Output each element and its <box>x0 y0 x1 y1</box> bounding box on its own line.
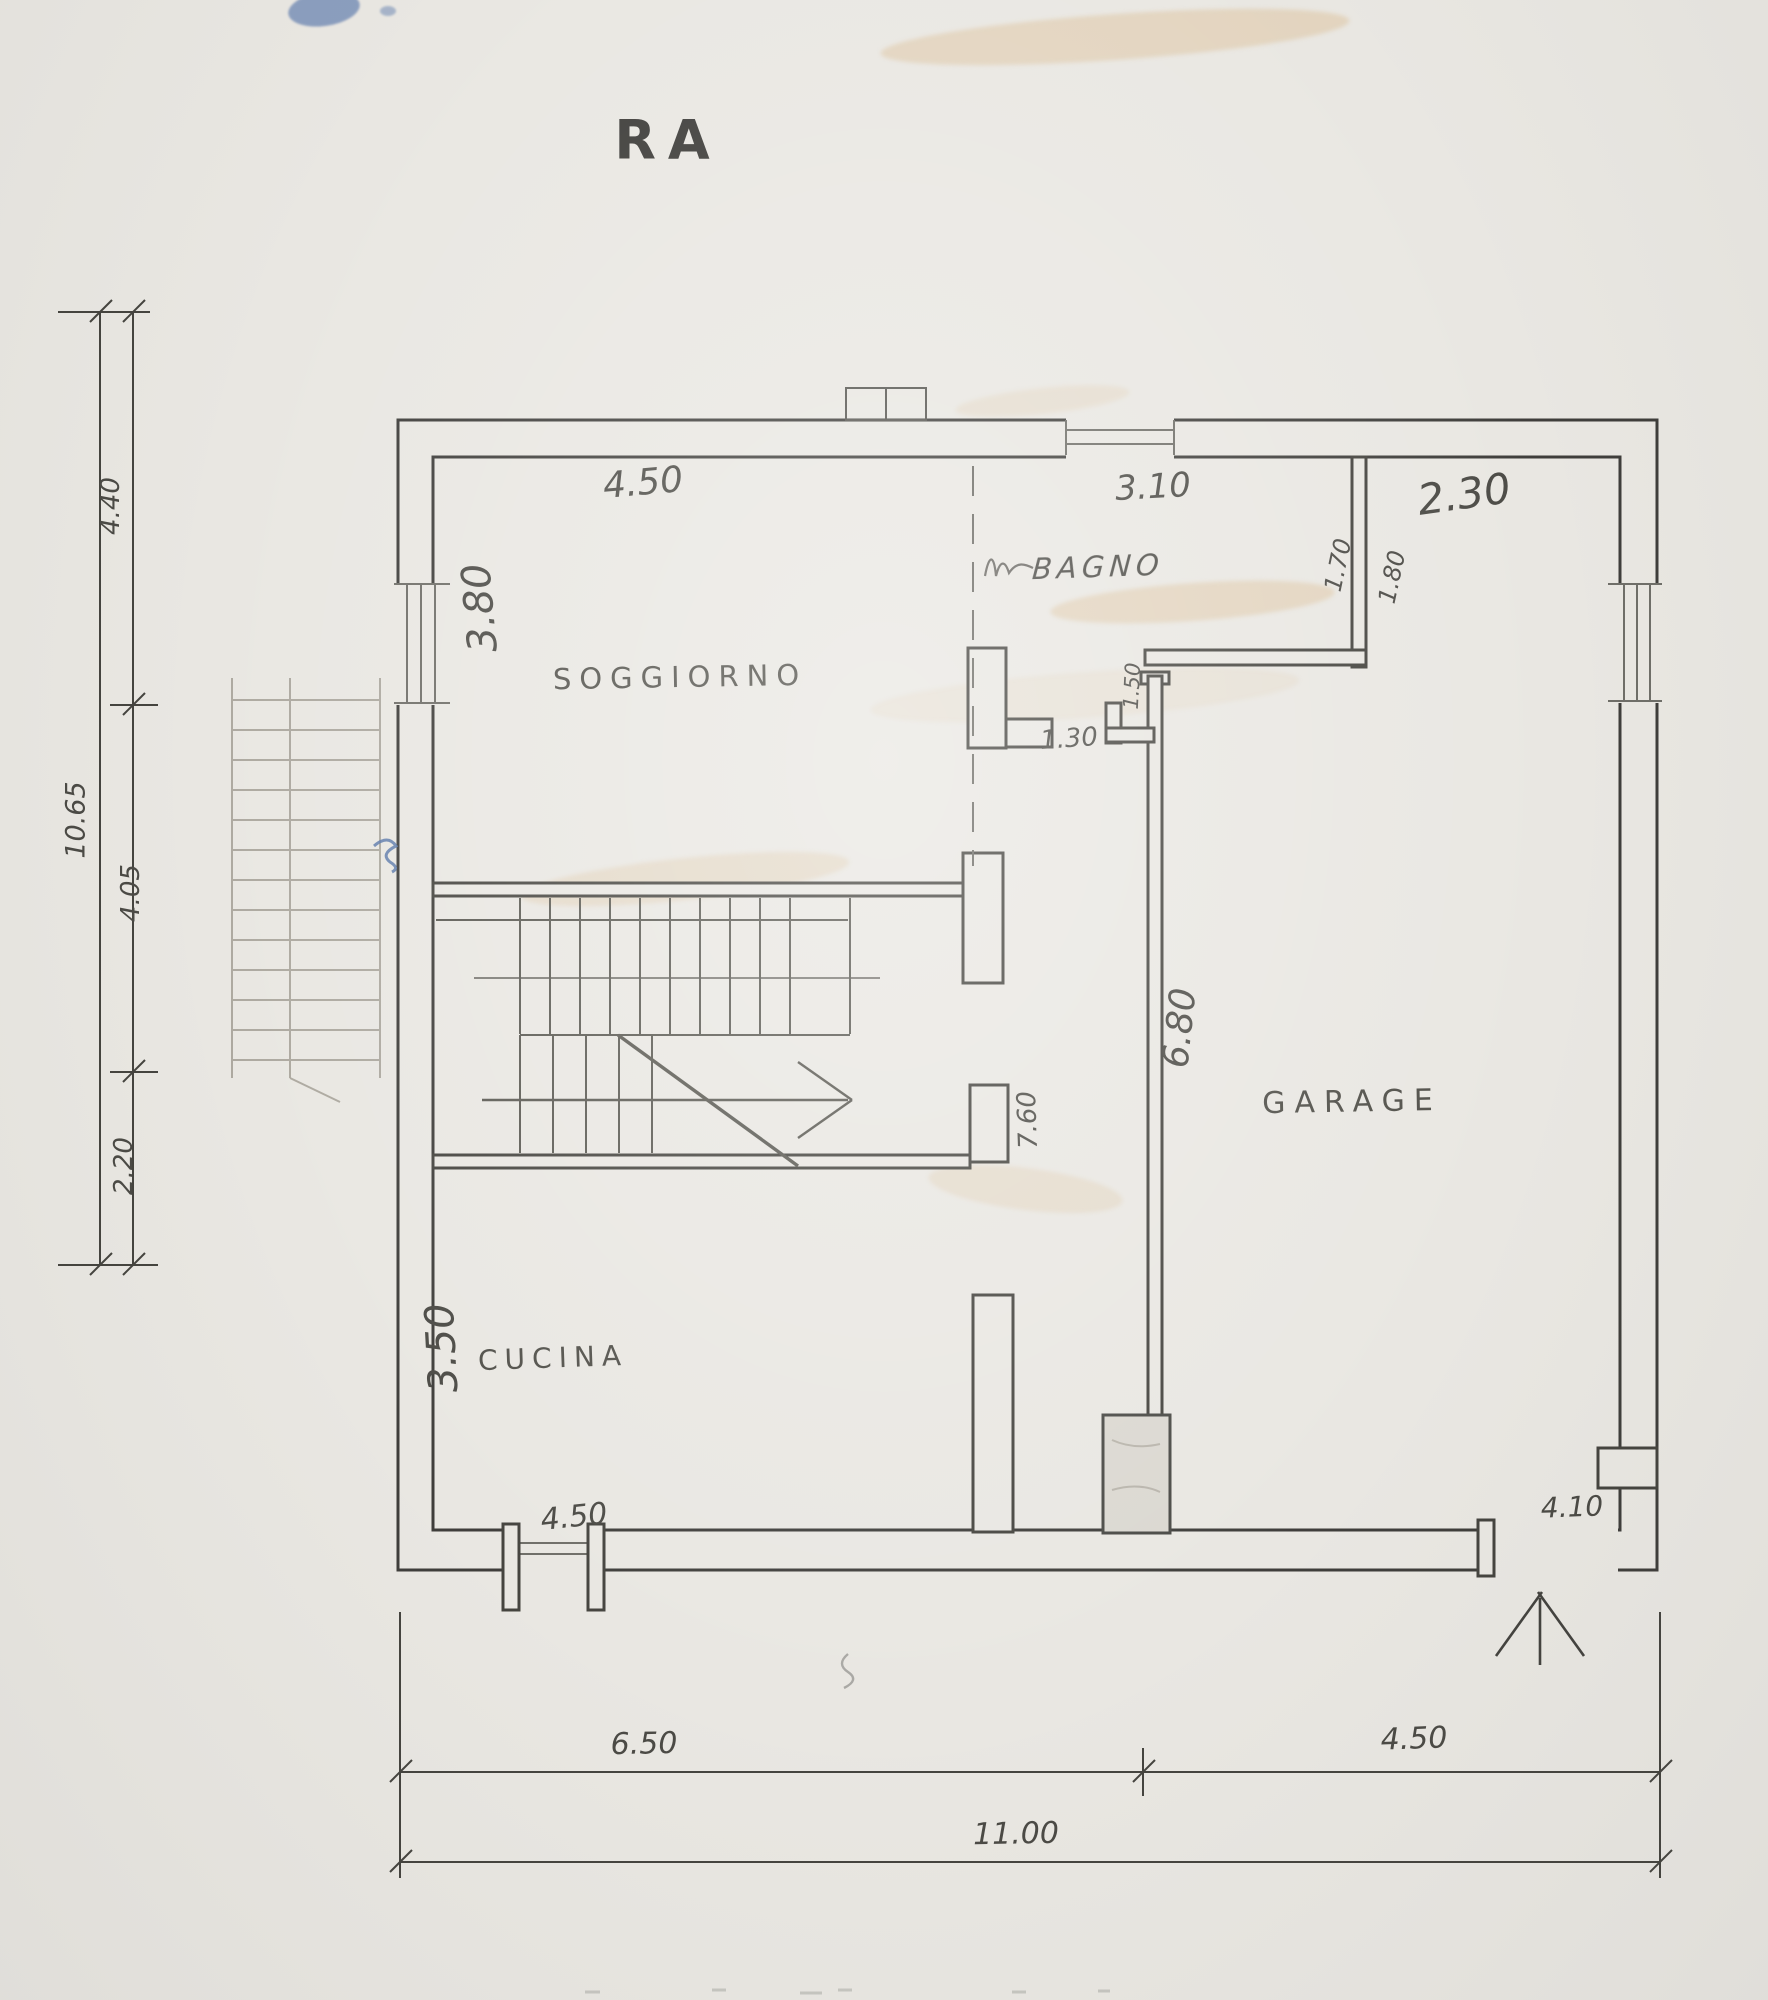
window-glyphs <box>394 420 1662 1554</box>
dim-bottom-right: 4.50 <box>1380 1720 1448 1757</box>
room-label-bagno: BAGNO <box>1031 548 1165 587</box>
dim-hall-opening: 1.30 <box>1039 722 1099 756</box>
illegible-handwriting <box>985 560 1033 577</box>
dim-hall-length: 7.60 <box>1012 1091 1044 1150</box>
dim-top-soggiorno: 4.50 <box>601 459 684 507</box>
dim-cucina-window: 4.50 <box>539 1496 609 1538</box>
top-wall-bump <box>846 388 926 420</box>
wall-cucina-right <box>973 1295 1013 1532</box>
exterior-walls <box>398 420 1657 1570</box>
wall-outer-face <box>398 420 1657 1570</box>
floorplan-drawing <box>0 0 1768 2000</box>
staircase <box>436 898 880 1166</box>
garage-fixture <box>1103 1415 1170 1533</box>
wall-bagno-right <box>1352 457 1366 667</box>
interior-walls <box>433 457 1657 1610</box>
scanned-floorplan-page: RA 4.50 3.10 2.30 3.80 SOGGIORNO BAGNO 1… <box>0 0 1768 2000</box>
dim-bagno-door: 1.50 <box>1119 662 1145 710</box>
dim-left-bottom: 2.20 <box>109 1137 139 1195</box>
dim-bottom-total: 11.00 <box>973 1816 1059 1852</box>
dim-soggiorno-height: 3.80 <box>453 562 507 655</box>
dim-cucina-height: 3.50 <box>417 1302 468 1393</box>
dim-garage-length: 6.80 <box>1155 986 1204 1070</box>
dim-left-top: 4.40 <box>96 477 126 535</box>
blue-pen-scribble <box>374 840 396 872</box>
room-label-cucina: CUCINA <box>477 1339 628 1377</box>
wall-bagno-door-stub-h <box>1106 728 1154 742</box>
garage-door-pier <box>1478 1520 1494 1576</box>
wall-stair-pier-bottom <box>970 1085 1008 1162</box>
dim-left-mid: 4.05 <box>116 864 146 922</box>
stair-direction-arrow <box>482 1062 852 1138</box>
wall-opening-masks <box>392 414 1664 1576</box>
dim-left-total: 10.65 <box>61 781 92 858</box>
right-wall-notch <box>1598 1448 1657 1488</box>
dim-bottom-left: 6.50 <box>610 1726 677 1762</box>
entrance-arrow <box>1496 1592 1584 1665</box>
wall-stair-top <box>433 883 963 896</box>
dim-garage-door: 4.10 <box>1540 1489 1603 1524</box>
wall-garage <box>1148 676 1162 1532</box>
room-label-garage: GARAGE <box>1262 1083 1442 1121</box>
page-title: RA <box>614 109 721 172</box>
room-label-soggiorno: SOGGIORNO <box>553 658 808 696</box>
exterior-stairs <box>232 678 380 1102</box>
faint-mark <box>842 1654 853 1688</box>
wall-bagno-bottom <box>1145 650 1366 665</box>
cucina-window-jamb-right <box>588 1524 604 1610</box>
wall-stair-pier-top <box>963 853 1003 983</box>
cucina-window-jamb-left <box>503 1524 519 1610</box>
dim-top-bagno: 3.10 <box>1114 465 1192 509</box>
bottom-edge-marks <box>585 1990 1110 1993</box>
wall-stair-bottom <box>433 1155 970 1168</box>
